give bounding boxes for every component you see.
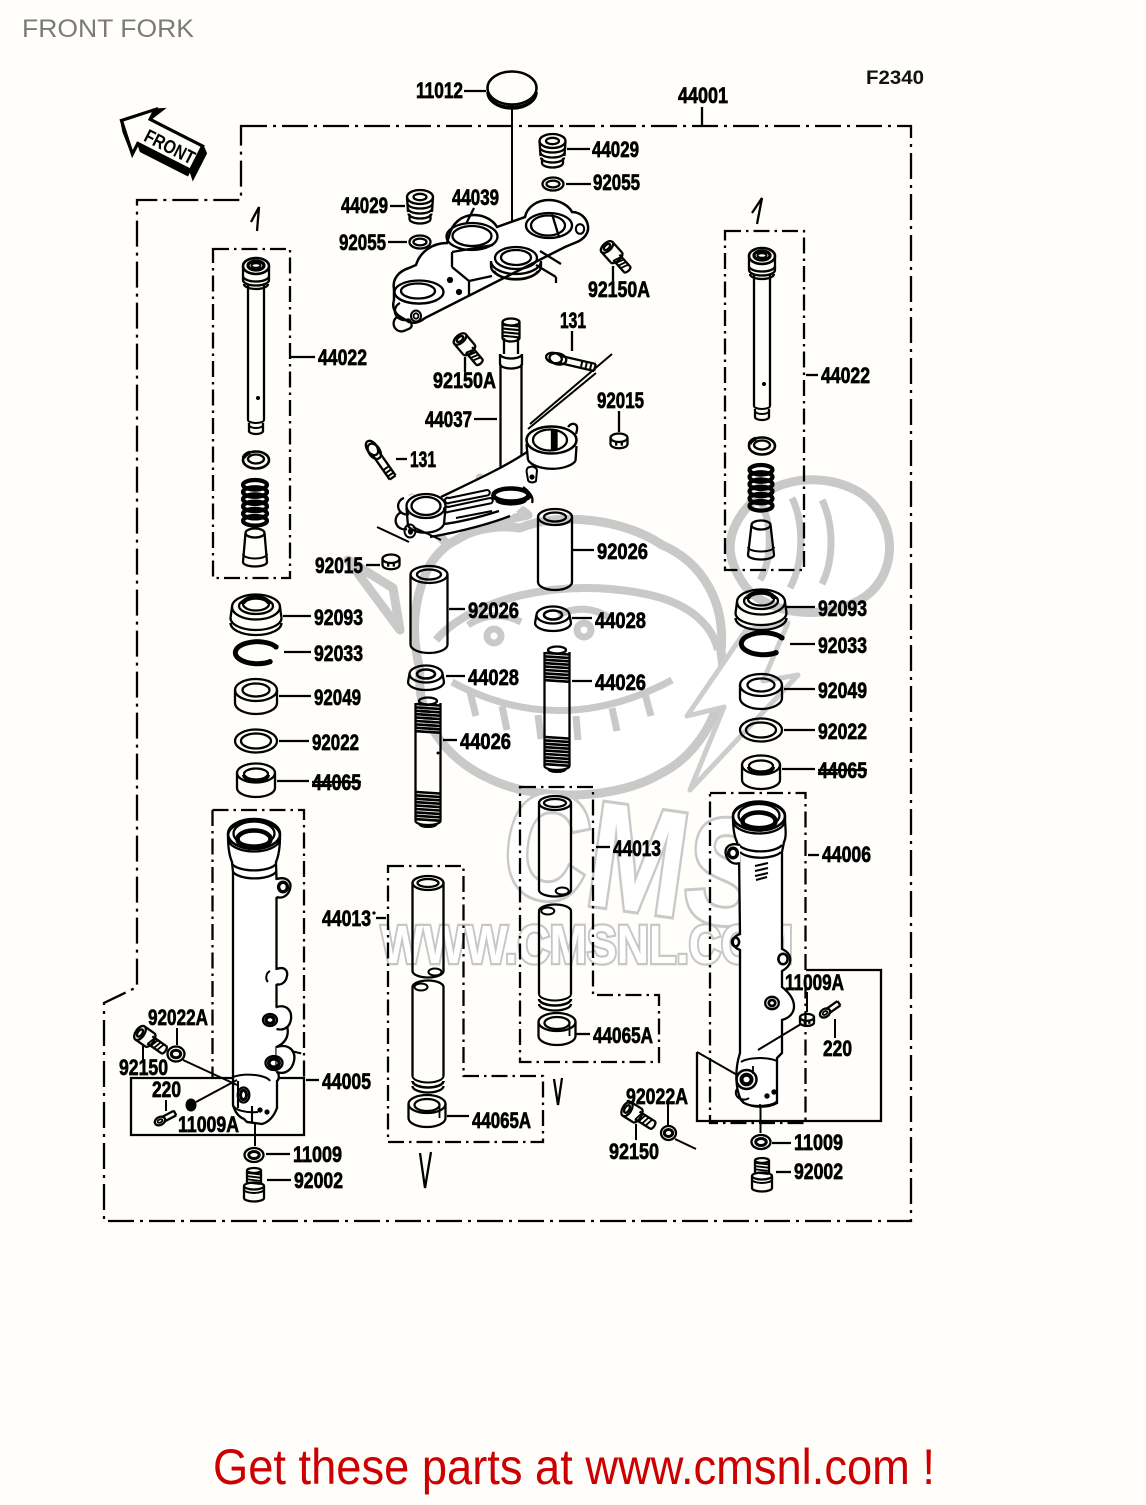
svg-text:44013: 44013	[322, 906, 371, 931]
svg-text:92055: 92055	[593, 170, 640, 195]
svg-text:44039: 44039	[452, 185, 499, 210]
svg-text:92033: 92033	[818, 633, 867, 658]
svg-text:131: 131	[410, 447, 436, 472]
svg-text:92026: 92026	[468, 598, 519, 623]
svg-text:131: 131	[560, 308, 586, 333]
svg-text:44026: 44026	[595, 670, 646, 695]
svg-text:44013: 44013	[613, 836, 661, 861]
svg-text:92022: 92022	[818, 719, 867, 744]
svg-text:44022: 44022	[318, 345, 367, 370]
svg-text:FRONT FORK: FRONT FORK	[22, 15, 194, 43]
svg-text:44022: 44022	[821, 363, 870, 388]
svg-text:F2340: F2340	[866, 68, 924, 89]
svg-text:92002: 92002	[794, 1159, 843, 1184]
svg-text:92022: 92022	[312, 730, 359, 755]
svg-text:44005: 44005	[322, 1069, 371, 1094]
svg-text:92026: 92026	[597, 539, 648, 564]
svg-text:92015: 92015	[315, 553, 363, 578]
svg-text:92093: 92093	[818, 596, 867, 621]
svg-text:44026: 44026	[460, 729, 511, 754]
svg-text:44029: 44029	[341, 193, 388, 218]
svg-text:44037: 44037	[425, 407, 472, 432]
svg-text:92033: 92033	[314, 641, 363, 666]
svg-text:92002: 92002	[294, 1168, 343, 1193]
svg-text:44065A: 44065A	[472, 1108, 531, 1133]
svg-text:44029: 44029	[592, 137, 639, 162]
svg-text:92150A: 92150A	[588, 277, 650, 302]
svg-text:44006: 44006	[822, 842, 871, 867]
svg-text:92049: 92049	[818, 678, 867, 703]
svg-text:92015: 92015	[597, 388, 644, 413]
svg-text:44028: 44028	[468, 665, 519, 690]
svg-text:44001: 44001	[678, 83, 728, 108]
svg-text:92093: 92093	[314, 605, 363, 630]
svg-text:11009: 11009	[293, 1142, 342, 1167]
svg-text:92055: 92055	[339, 230, 386, 255]
svg-text:44065A: 44065A	[593, 1023, 653, 1048]
svg-text:220: 220	[152, 1077, 181, 1102]
svg-text:44028: 44028	[595, 608, 646, 633]
svg-text:11012: 11012	[416, 78, 463, 103]
svg-text:220: 220	[823, 1036, 852, 1061]
svg-text:11009A: 11009A	[785, 970, 844, 995]
svg-text:92150: 92150	[609, 1139, 659, 1164]
svg-text:11009: 11009	[794, 1130, 843, 1155]
svg-text:11009A: 11009A	[178, 1112, 239, 1137]
svg-text:Get these parts at www.cmsnl.c: Get these parts at www.cmsnl.com !	[213, 1439, 935, 1495]
svg-text:92049: 92049	[314, 685, 361, 710]
svg-text:92022A: 92022A	[148, 1005, 208, 1030]
